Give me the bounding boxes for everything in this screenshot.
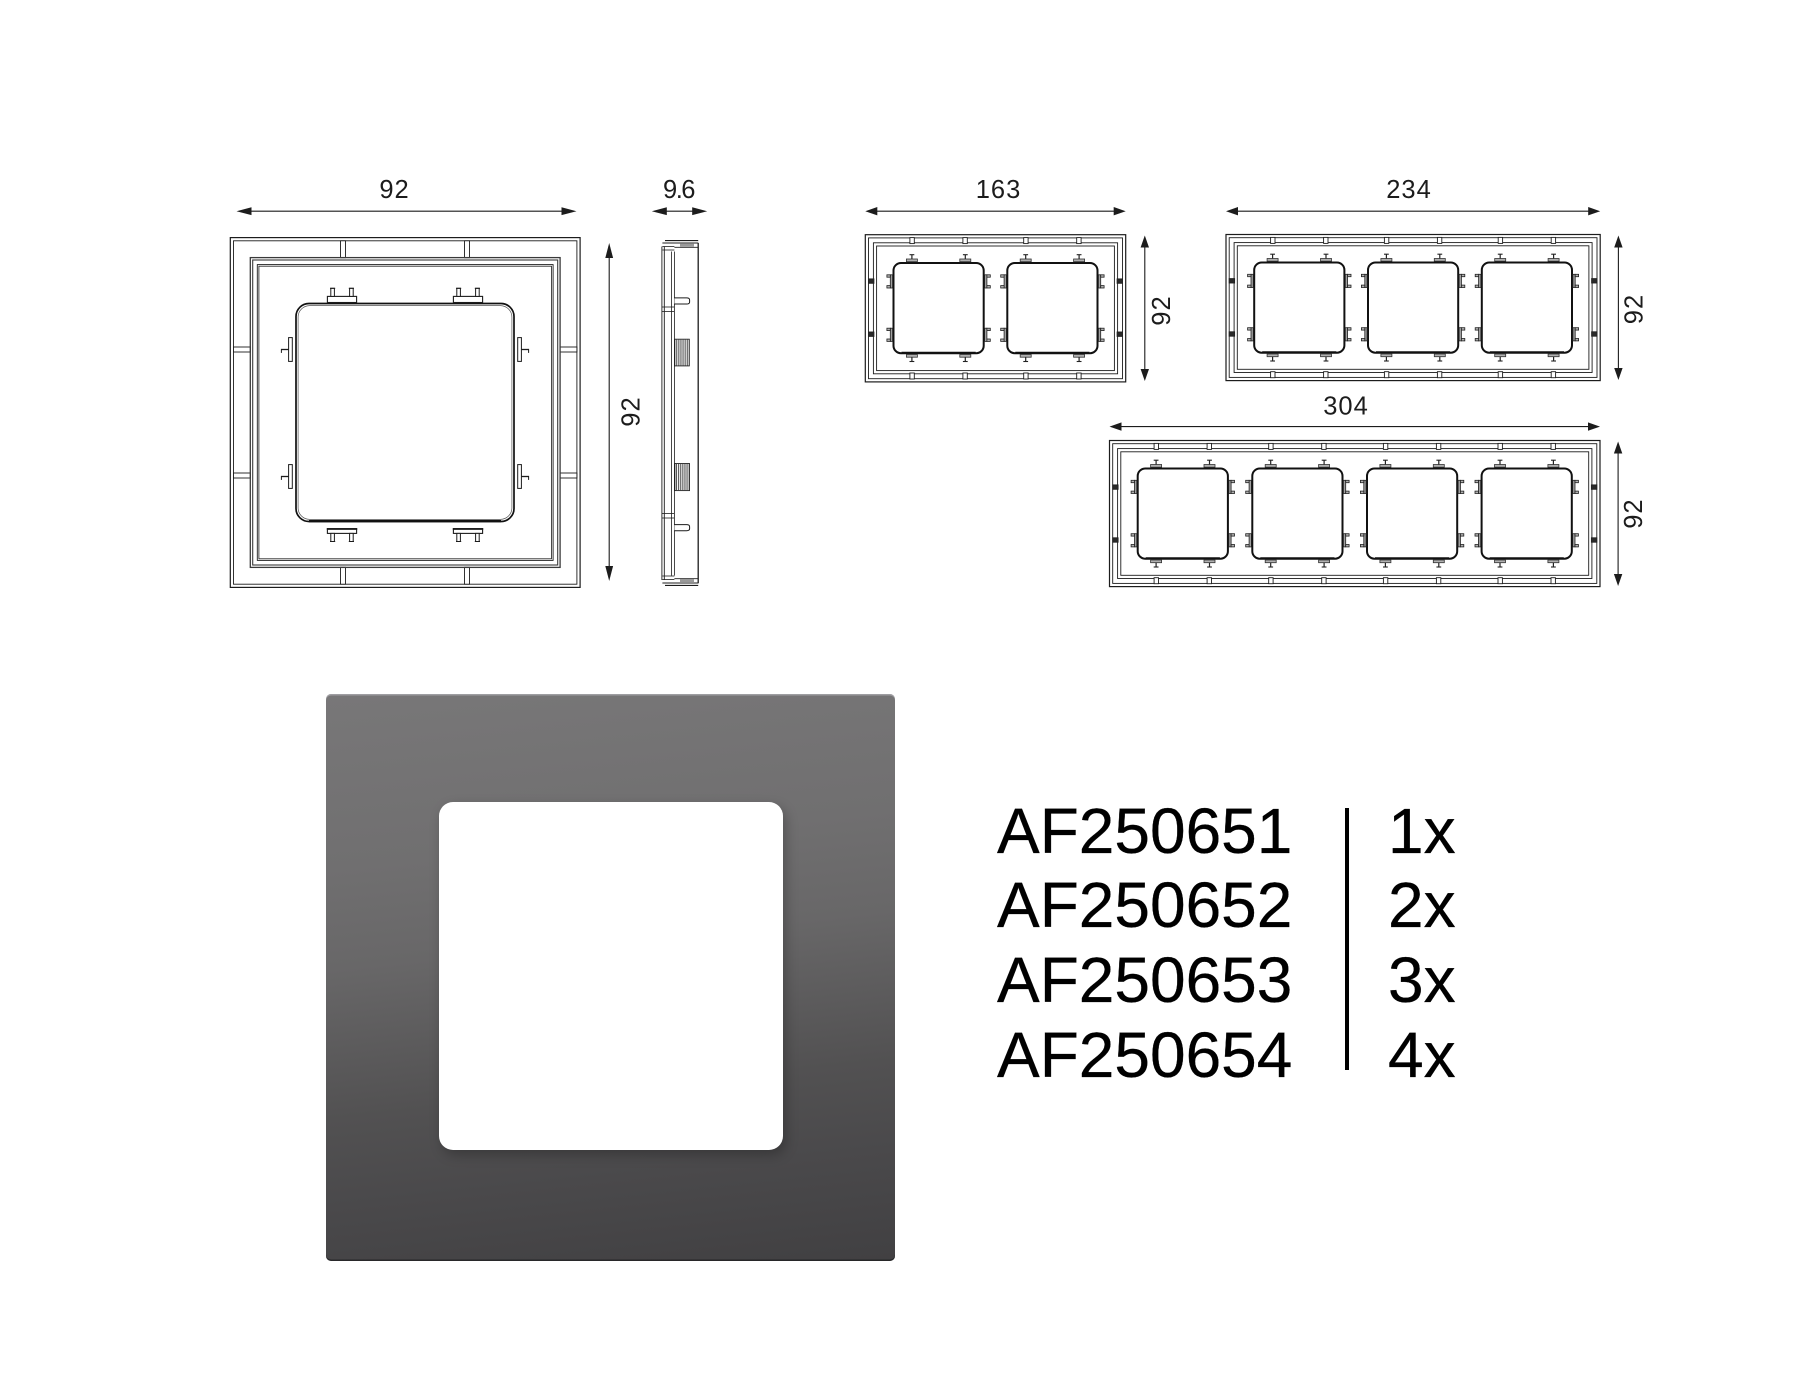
- svg-text:92: 92: [1621, 294, 1649, 324]
- svg-text:92: 92: [379, 176, 409, 204]
- svg-text:92: 92: [1620, 498, 1648, 528]
- svg-text:92: 92: [1148, 295, 1176, 325]
- svg-text:9.6: 9.6: [663, 176, 695, 204]
- svg-text:92: 92: [618, 396, 646, 426]
- svg-text:234: 234: [1386, 176, 1432, 204]
- svg-text:304: 304: [1323, 393, 1369, 421]
- svg-text:163: 163: [976, 176, 1022, 204]
